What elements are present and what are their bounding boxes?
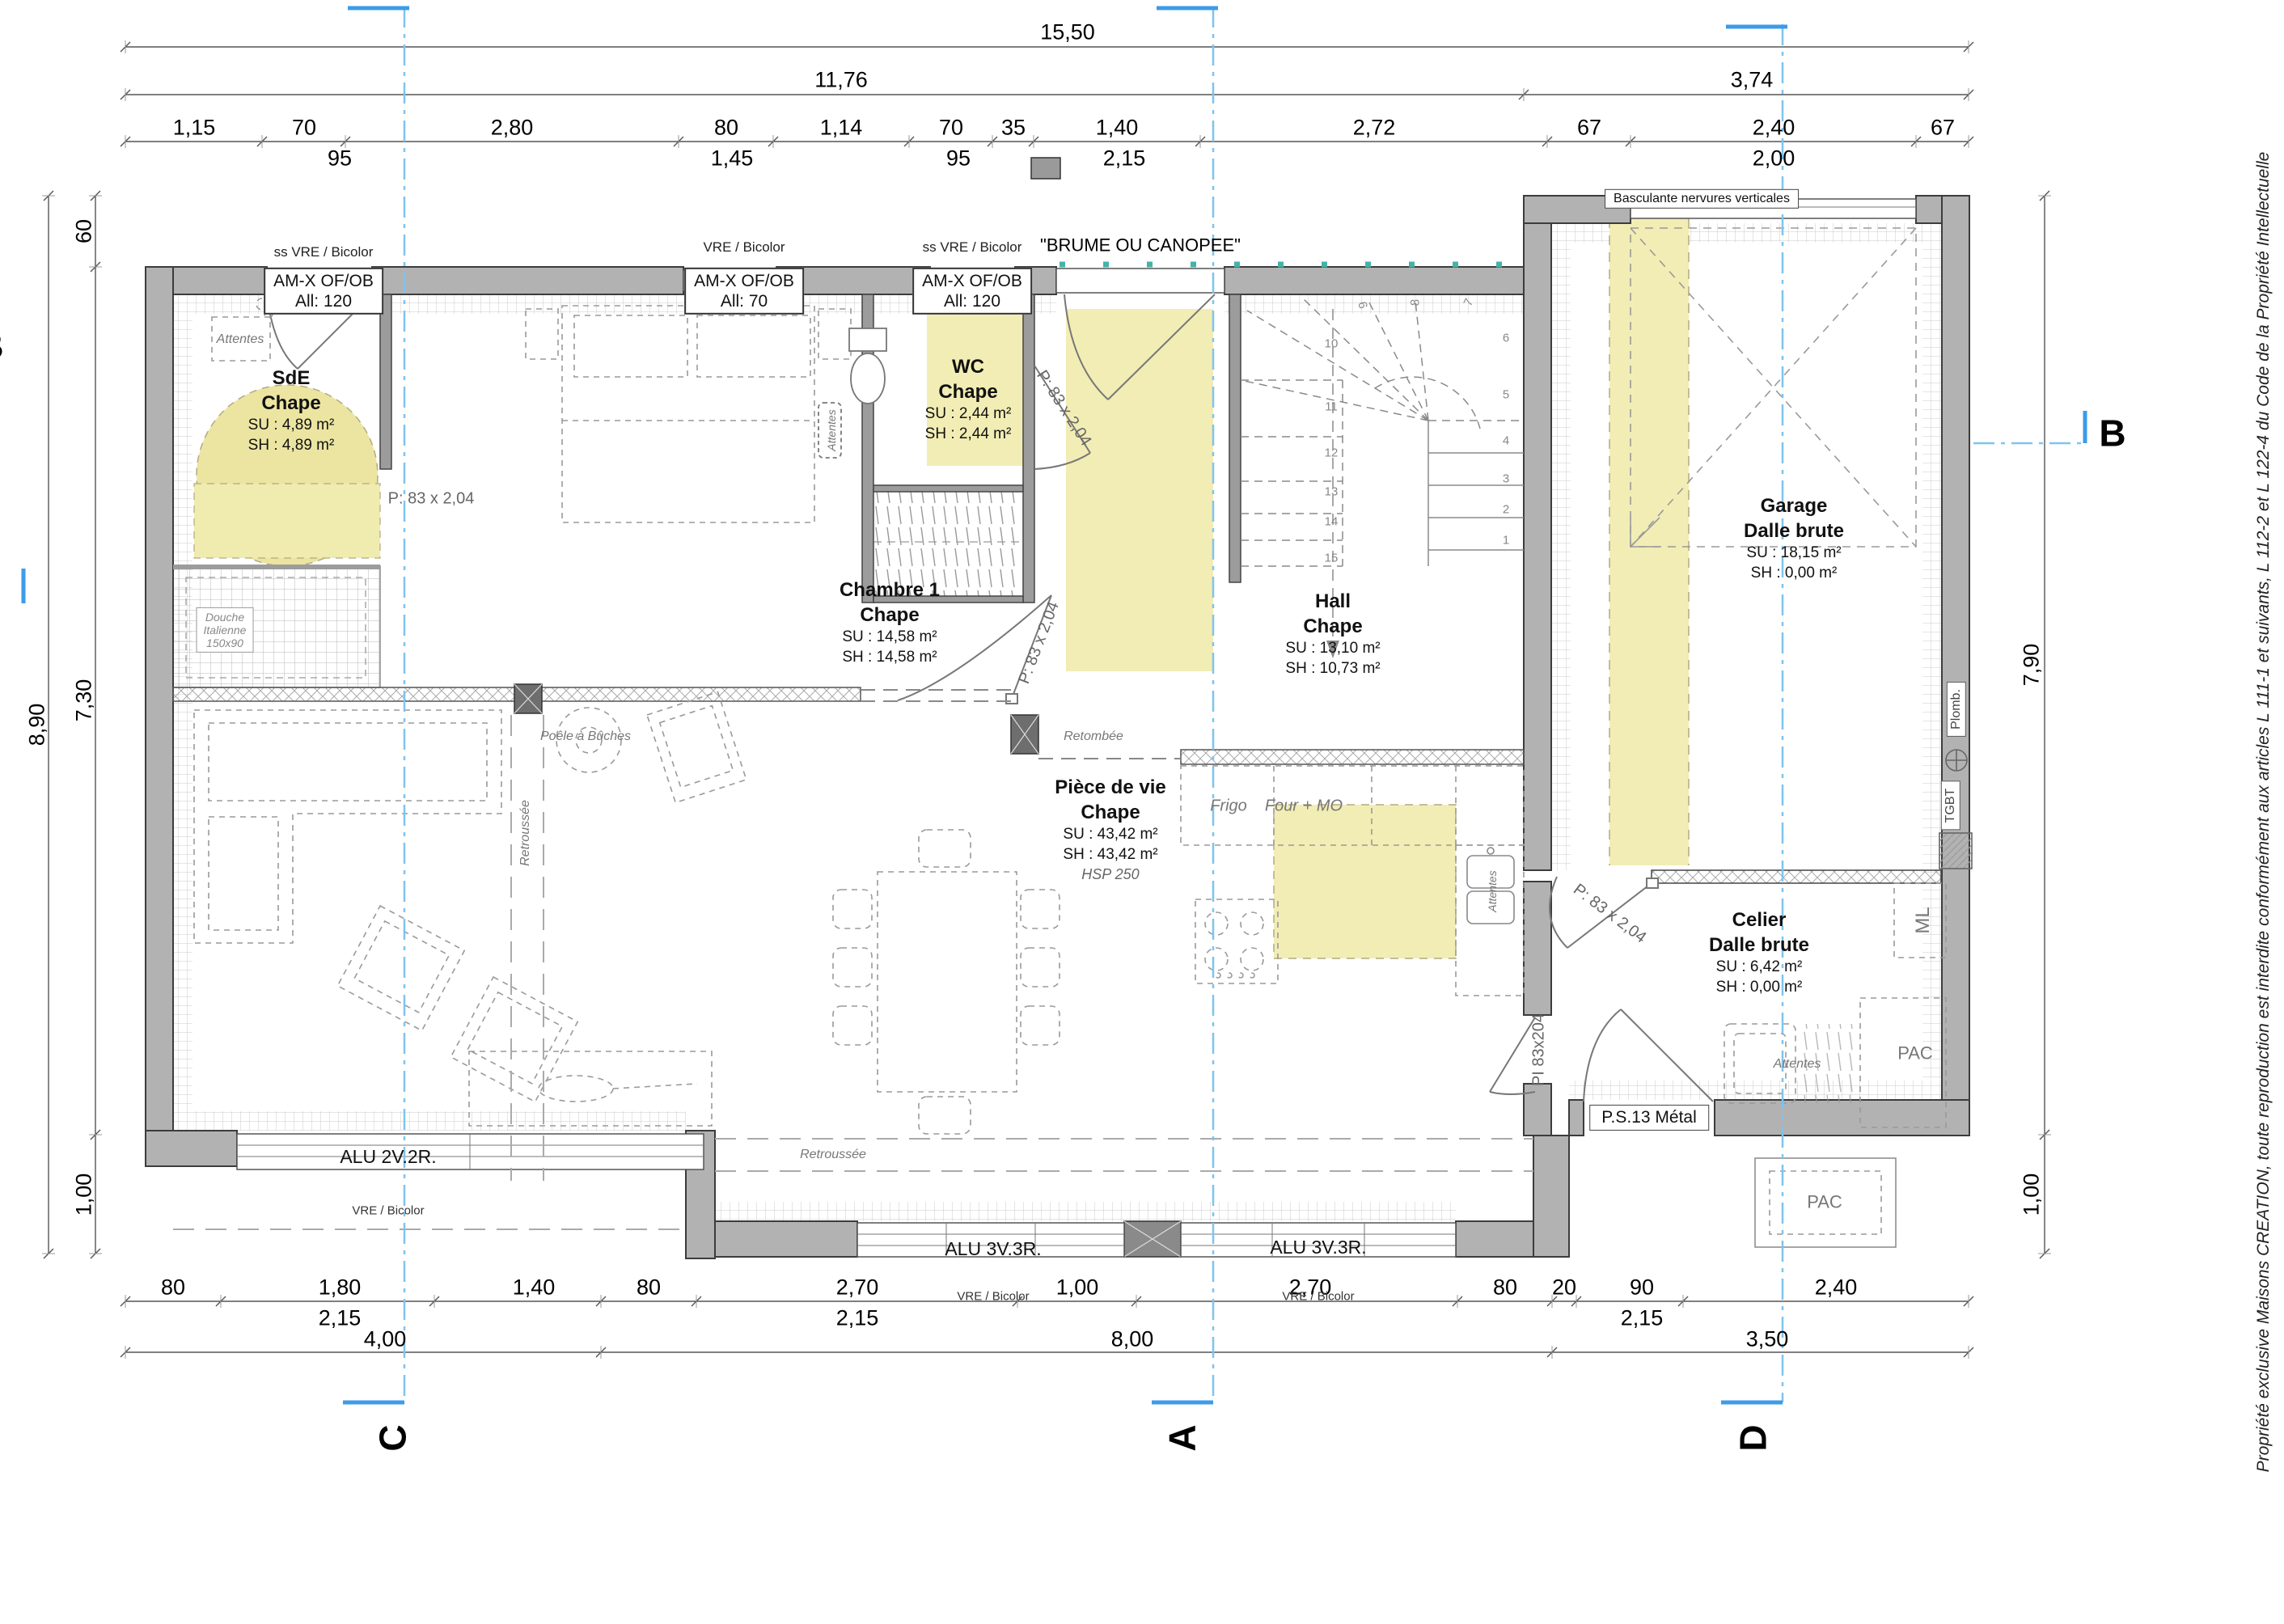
dim-main-width: 11,76 [814,67,868,92]
dim-total-width: 15,50 [1040,19,1095,44]
door-celier: P: 83 x 2,04 [1569,881,1649,948]
stair-14: 14 [1325,514,1339,528]
dim-r2: 1,00 [2019,1174,2044,1216]
win1-ref: AM-X OF/OB All: 120 [264,268,383,315]
dim-t7: 35 [1001,115,1026,140]
dim-r1: 7,90 [2019,644,2044,687]
room-label-celier: CelierDalle bruteSU : 6,42 m²SH : 0,00 m… [1709,907,1809,998]
dim-ts3: 95 [946,146,971,171]
dim-t10: 67 [1577,115,1601,140]
garage-door-ref: Basculante nervures verticales [1605,189,1799,209]
win3-type: ss VRE / Bicolor [923,239,1022,256]
plomb: Plomb. [1947,682,1966,737]
win-alu2v2r: ALU 2V.2R. [340,1146,436,1167]
dim-b1: 80 [161,1275,185,1300]
win-alu3v3r-1: ALU 3V.3R. [945,1238,1041,1259]
dim-bs3: 2,15 [1621,1305,1664,1330]
door-wc: P: 83 x 2,04 [1032,367,1094,450]
dim-b6: 1,00 [1056,1275,1099,1300]
stair-6: 6 [1503,331,1509,345]
dim-ts1: 95 [328,146,352,171]
retroussee-h: Retroussée [800,1148,866,1162]
stair-9: 9 [1356,300,1372,311]
win2-ref: AM-X OF/OB All: 70 [684,268,804,315]
win-alu3v3r-2: ALU 3V.3R. [1270,1237,1366,1258]
win3-ref: AM-X OF/OB All: 120 [912,268,1032,315]
dim-l2: 7,30 [71,679,96,722]
dim-br2: 8,00 [1111,1326,1154,1351]
stair-10: 10 [1325,336,1339,350]
win-alu3v3r-1-type: VRE / Bicolor [957,1289,1029,1303]
dim-b11: 2,40 [1815,1275,1858,1300]
tgbt: TGBT [1941,781,1960,831]
door-hall: P: 83 x 2,04 [1015,599,1064,687]
axis-letter-c: C [372,1424,415,1451]
win2-type: VRE / Bicolor [703,239,785,256]
douche-italienne: Douche Italienne 150x90 [197,607,254,653]
attentes-kitchen: Attentes [1486,870,1499,911]
dim-ts2: 1,45 [711,146,754,171]
copyright-notice: Propriété exclusive Maisons CREATION, to… [2254,152,2273,1473]
axis-letter-b-left: B [0,325,4,368]
dim-bs1: 2,15 [319,1305,362,1330]
pac-celier: PAC [1897,1042,1933,1063]
door-pi: PI 83x204 [1530,1013,1549,1086]
dim-t3: 2,80 [491,115,534,140]
dim-t6: 70 [939,115,963,140]
room-label-sde: SdEChapeSU : 4,89 m²SH : 4,89 m² [248,366,335,456]
axis-letter-d: D [1732,1424,1775,1451]
floor-plan-page: 15,5011,763,741,15702,80801,1470351,402,… [0,0,2284,1624]
dim-b5: 2,70 [836,1275,879,1300]
stair-8: 8 [1408,299,1423,307]
stair-13: 13 [1325,484,1339,498]
dim-ts4: 2,15 [1103,146,1146,171]
dim-l1: 60 [71,219,96,243]
room-label-hall: HallChapeSU : 13,10 m²SH : 10,73 m² [1285,589,1380,679]
stair-4: 4 [1503,433,1509,447]
dim-l3: 1,00 [71,1174,96,1216]
dim-t9: 2,72 [1353,115,1396,140]
dim-bs2: 2,15 [836,1305,879,1330]
room-label-piece-de-vie: Pièce de vieChapeSU : 43,42 m²SH : 43,42… [1055,775,1165,884]
stair-1: 1 [1503,533,1509,547]
stair-7: 7 [1461,297,1476,309]
dim-t8: 1,40 [1096,115,1139,140]
stair-5: 5 [1503,387,1509,401]
dim-t5: 1,14 [820,115,863,140]
frigo: Frigo [1210,797,1247,816]
dim-br3: 3,50 [1746,1326,1789,1351]
dim-t12: 67 [1931,115,1955,140]
stair-12: 12 [1325,446,1339,459]
dim-t1: 1,15 [173,115,216,140]
dim-ts5: 2,00 [1753,146,1795,171]
door-ps13: P.S.13 Métal [1589,1105,1709,1131]
dim-b3: 1,40 [513,1275,556,1300]
dim-garage-width: 3,74 [1731,67,1774,92]
dim-left-total: 8,90 [24,704,49,746]
room-label-wc: WCChapeSU : 2,44 m²SH : 2,44 m² [925,354,1012,445]
win1-type: ss VRE / Bicolor [274,244,374,260]
dim-t11: 2,40 [1753,115,1795,140]
entry-name: "BRUME OU CANOPEE" [1040,235,1241,255]
retroussee-v: Retroussée [518,800,533,866]
labels-layer: 15,5011,763,741,15702,80801,1470351,402,… [0,0,2284,1624]
dim-b4: 80 [637,1275,661,1300]
poele-a-buches: Poêle à Bûches [540,730,631,744]
dim-b2: 1,80 [319,1275,362,1300]
win-alu3v3r-2-type: VRE / Bicolor [1282,1289,1354,1303]
door-sde: P: 83 x 2,04 [388,490,475,509]
ml: ML [1912,907,1935,933]
dim-b8: 80 [1493,1275,1517,1300]
stair-15: 15 [1325,551,1339,565]
stair-2: 2 [1503,502,1509,516]
win-alu2v2r-type: VRE / Bicolor [352,1203,424,1217]
dim-t2: 70 [292,115,316,140]
pac-ext: PAC [1807,1191,1842,1212]
dim-t4: 80 [714,115,738,140]
stair-11: 11 [1325,400,1338,413]
room-label-garage: GarageDalle bruteSU : 18,15 m²SH : 0,00 … [1744,493,1844,584]
room-label-chambre1: Chambre 1ChapeSU : 14,58 m²SH : 14,58 m² [840,577,940,668]
axis-letter-a: A [1161,1424,1204,1451]
stair-3: 3 [1503,472,1509,485]
four-mo: Four + MO [1265,797,1343,816]
axis-letter-b-right: B [2099,412,2125,455]
dim-b10: 90 [1630,1275,1654,1300]
retombee: Retombée [1064,730,1123,744]
dim-br1: 4,00 [364,1326,407,1351]
dim-b9: 20 [1552,1275,1576,1300]
attentes-sde: Attentes [217,332,264,347]
attentes-wc: Attentes [825,409,838,450]
attentes-celier: Attentes [1774,1057,1821,1072]
